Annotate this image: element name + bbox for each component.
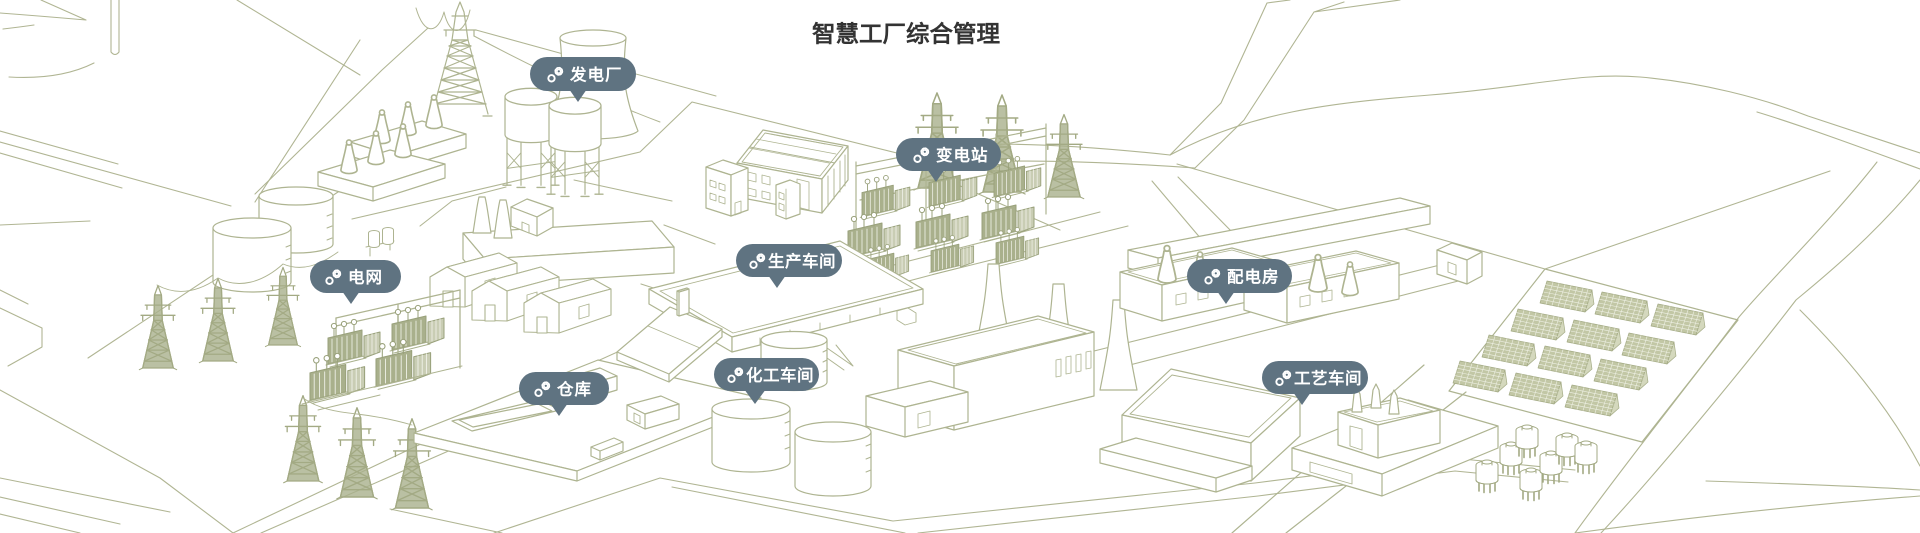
svg-text:智慧工厂综合管理: 智慧工厂综合管理 [812, 21, 1000, 47]
svg-text:工艺车间: 工艺车间 [1294, 369, 1362, 388]
svg-text:生产车间: 生产车间 [768, 252, 836, 271]
svg-text:仓库: 仓库 [556, 380, 592, 399]
svg-text:电网: 电网 [348, 268, 383, 287]
svg-text:配电房: 配电房 [1227, 268, 1280, 287]
svg-text:化工车间: 化工车间 [746, 366, 814, 385]
svg-text:发电厂: 发电厂 [569, 66, 623, 85]
svg-text:变电站: 变电站 [936, 146, 989, 165]
